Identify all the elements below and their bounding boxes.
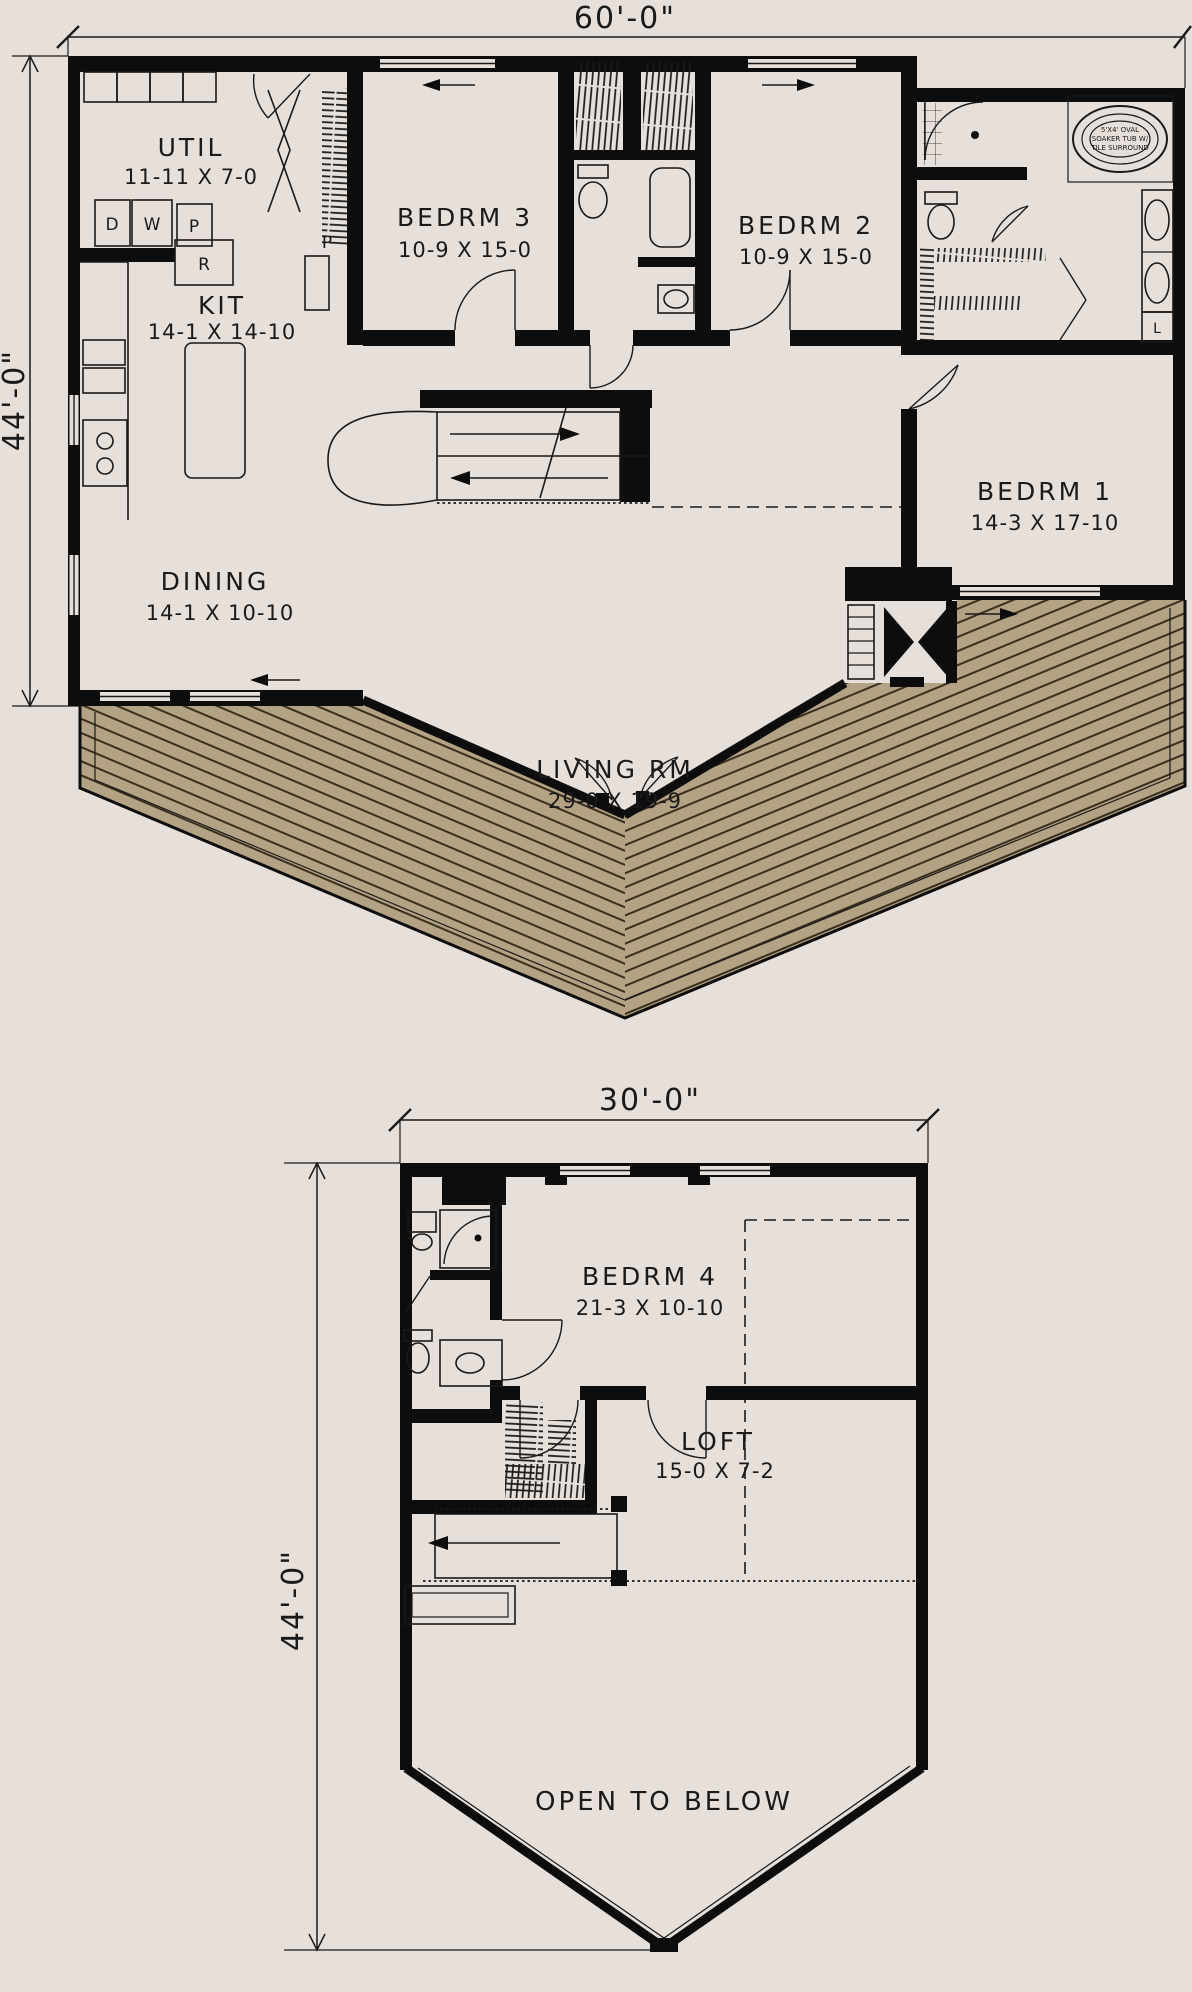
pantry-util-label: P [189,217,199,237]
dimension-width-30ft: 30'-0" [389,1083,939,1163]
bedrm1-label: BEDRM 1 [977,477,1113,506]
stair-down-arrow [450,471,470,485]
room-bedrm4: BEDRM 4 21-3 X 10-10 [502,1220,928,1577]
first-floor-plan: 60'-0" 44'-0" [0,1,1191,1018]
dining-size: 14-1 X 10-10 [146,601,294,625]
washer-label: W [144,215,161,235]
sink-f2 [456,1353,484,1373]
master-toilet-bowl [928,205,954,239]
toilet-tank [578,165,608,178]
closet-hatch-left [576,62,621,150]
kit-size: 14-1 X 14-10 [148,320,296,344]
tub-note-line2: SOAKER TUB W/ [1092,135,1149,143]
stair-up-arrow [560,427,580,441]
bath-sink [412,1234,432,1250]
master-toilet-tank [925,192,957,204]
util-size: 11-11 X 7-0 [124,165,258,189]
kitchen-sink-cabinet [83,420,127,486]
dim-44ft-label-f2: 44'-0" [276,1549,311,1651]
kitchen-island [185,343,245,478]
pantry-kit-label: P [322,233,332,253]
stair-landing-below [405,1586,515,1624]
stair-arrow-f2 [428,1536,448,1550]
bedrm2-size: 10-9 X 15-0 [739,245,873,269]
floorplan-drawing: 60'-0" 44'-0" [0,0,1192,1992]
util-closet-hatch [322,88,347,246]
dryer-label: D [105,215,118,235]
shower-stall [440,1210,496,1268]
stairs-second-floor [405,1496,916,1624]
shower-drain [971,131,979,139]
linen-label: L [1153,321,1161,337]
bedrm4-size: 21-3 X 10-10 [576,1296,724,1320]
double-vanity: L [1142,190,1173,342]
bathtub [650,168,690,247]
room-kitchen: KIT 14-1 X 14-10 R P [80,233,332,520]
room-dining: DINING 14-1 X 10-10 [146,567,294,625]
loft-size: 15-0 X 7-2 [655,1459,775,1483]
master-bathroom: 5'X4' OVAL SOAKER TUB W/ TILE SURROUND [920,96,1173,342]
bedrm3-size: 10-9 X 15-0 [398,238,532,262]
toilet-bowl [579,182,607,218]
room-loft: LOFT 15-0 X 7-2 [655,1427,775,1483]
slider-arrow-bedrm2 [762,79,815,91]
walkin-closet [920,248,1086,340]
stair-break-line [540,408,566,498]
stair-rail-curve [328,411,437,505]
fireplace [845,567,957,687]
slider-arrow-bedrm3 [422,79,475,91]
shower-tile-strip [923,103,942,165]
closet-hatch-right [643,62,693,150]
dim-44ft-label-f1: 44'-0" [0,349,32,451]
slider-arrow-dining [250,674,300,686]
soaker-tub: 5'X4' OVAL SOAKER TUB W/ TILE SURROUND [1068,96,1173,182]
counter-left [80,262,128,520]
util-label: UTIL [158,133,225,162]
room-bedrm2: BEDRM 2 10-9 X 15-0 [730,211,874,330]
room-util: UTIL 11-11 X 7-0 D W P [84,72,347,246]
vanity-f2 [440,1340,502,1386]
bedrm2-label: BEDRM 2 [738,211,874,240]
tub-note-line1: 5'X4' OVAL [1101,126,1139,134]
dim-60ft-label: 60'-0" [574,1,676,36]
bifold-closet-doors [254,74,347,246]
bedrm3-label: BEDRM 3 [397,203,533,232]
bath-sink-counter [408,1212,436,1232]
kit-label: KIT [198,291,246,320]
floorplan-sheet: 60'-0" 44'-0" [0,0,1192,1992]
fireplace-vent [848,605,874,679]
open-below-label: OPEN TO BELOW [535,1787,793,1817]
living-label: LIVING RM [536,755,694,784]
loft-label: LOFT [681,1427,755,1456]
sink [664,290,688,308]
open-to-below: OPEN TO BELOW [535,1787,793,1817]
room-bedrm1: BEDRM 1 14-3 X 17-10 [909,365,1119,535]
dim-30ft-label: 30'-0" [599,1083,701,1118]
dining-label: DINING [161,567,270,596]
bedrm1-size: 14-3 X 17-10 [971,511,1119,535]
second-floor-plan: 30'-0" 44'-0" [276,1083,939,1952]
bedrm4-label: BEDRM 4 [582,1262,718,1291]
pantry-kit-box [305,256,329,310]
living-size: 29-0 X 19-9 [548,789,682,813]
room-bedrm3: BEDRM 3 10-9 X 15-0 [397,203,533,330]
stairs-first-floor [328,408,901,507]
tub-note-line3: TILE SURROUND [1090,144,1148,152]
range-label: R [198,255,210,275]
